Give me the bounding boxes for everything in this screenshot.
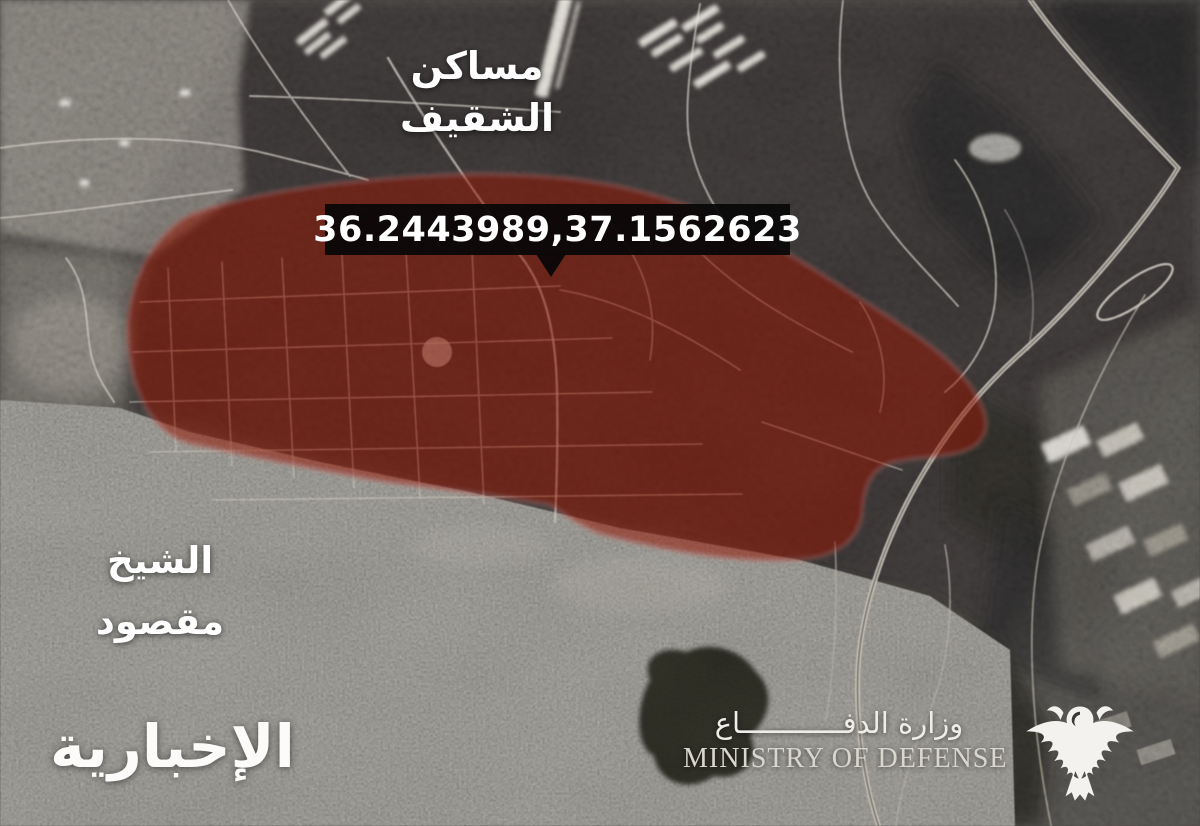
label-masaken-shaqif: مساكن الشقيف (392, 40, 562, 144)
ministry-of-defense-wordmark: وزارة الدفــــــــــــاع MINISTRY OF DEF… (683, 706, 995, 775)
coordinate-pointer-icon (536, 254, 566, 277)
label-line-1: مساكن (392, 40, 562, 92)
ministry-of-defense-lockup: وزارة الدفــــــــــــاع MINISTRY OF DEF… (683, 706, 1143, 816)
label-line-2: مقصود (80, 591, 240, 652)
label-line-2: الشقيف (392, 92, 562, 144)
mod-eagle-icon (1018, 696, 1142, 808)
label-line-1: الشيخ (80, 530, 240, 591)
coordinate-label: 36.2443989,37.1562623 (325, 204, 790, 255)
broadcast-frame: 36.2443989,37.1562623 مساكن الشقيف الشيخ… (0, 0, 1200, 826)
alikhbariya-channel-logo: الإخبارية (50, 712, 295, 781)
coordinate-callout: 36.2443989,37.1562623 (325, 204, 790, 255)
ministry-english-title: MINISTRY OF DEFENSE (683, 743, 995, 775)
label-sheikh-maqsoud: الشيخ مقصود (80, 530, 240, 652)
ministry-arabic-title: وزارة الدفــــــــــــاع (683, 706, 995, 740)
